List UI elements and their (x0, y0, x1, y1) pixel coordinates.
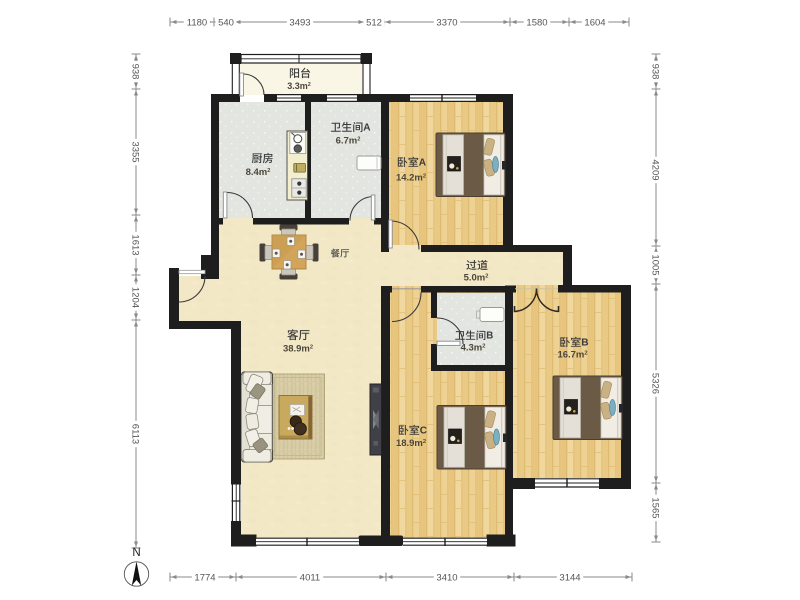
svg-text:938: 938 (130, 64, 141, 80)
svg-text:1580: 1580 (526, 17, 547, 28)
svg-text:3370: 3370 (436, 17, 457, 28)
svg-text:3144: 3144 (559, 572, 580, 583)
svg-text:8.4m2: 8.4m2 (246, 167, 271, 178)
svg-text:4209: 4209 (650, 159, 661, 180)
svg-text:38.9m2: 38.9m2 (283, 344, 313, 355)
svg-text:512: 512 (366, 17, 382, 28)
svg-text:18.9m2: 18.9m2 (396, 438, 426, 449)
svg-text:1774: 1774 (194, 572, 215, 583)
svg-text:1204: 1204 (130, 287, 141, 308)
svg-text:3355: 3355 (130, 141, 141, 162)
svg-text:1005: 1005 (650, 254, 661, 275)
svg-text:3493: 3493 (289, 17, 310, 28)
svg-text:938: 938 (650, 64, 661, 80)
svg-text:5.0m2: 5.0m2 (464, 273, 489, 284)
svg-text:540: 540 (218, 17, 234, 28)
svg-text:6.7m2: 6.7m2 (336, 136, 361, 147)
svg-text:C: C (420, 425, 428, 436)
svg-text:14.2m2: 14.2m2 (396, 173, 426, 184)
svg-text:1180: 1180 (187, 17, 207, 28)
svg-text:B: B (486, 330, 493, 341)
svg-text:1565: 1565 (650, 497, 661, 518)
svg-text:A: A (419, 157, 427, 168)
svg-text:1613: 1613 (130, 234, 141, 255)
svg-text:A: A (363, 122, 371, 133)
svg-text:3410: 3410 (436, 572, 457, 583)
svg-text:B: B (581, 337, 588, 348)
svg-text:4.3m2: 4.3m2 (461, 343, 486, 354)
svg-text:N: N (132, 547, 140, 559)
svg-text:5326: 5326 (650, 373, 661, 394)
svg-text:6113: 6113 (130, 424, 141, 444)
svg-text:3.3m2: 3.3m2 (287, 81, 311, 91)
svg-text:4011: 4011 (300, 572, 320, 583)
svg-text:1604: 1604 (584, 17, 605, 28)
svg-text:16.7m2: 16.7m2 (557, 350, 587, 361)
